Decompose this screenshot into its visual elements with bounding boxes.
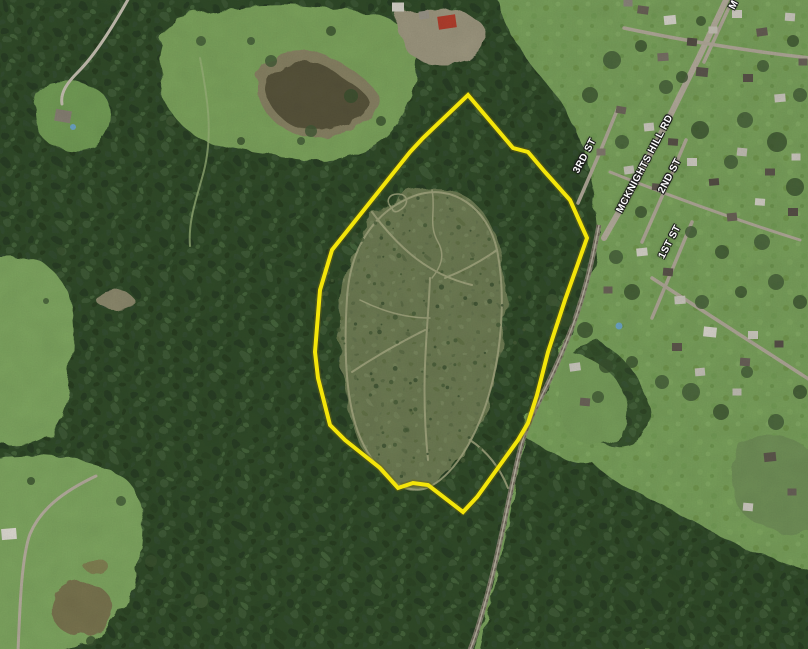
map-viewport[interactable]: 3RD ST MCKNIGHTS HILL RD 2ND ST 1ST ST M <box>0 0 808 649</box>
satellite-imagery <box>0 0 808 649</box>
noise-overlay-coarse <box>0 0 808 649</box>
